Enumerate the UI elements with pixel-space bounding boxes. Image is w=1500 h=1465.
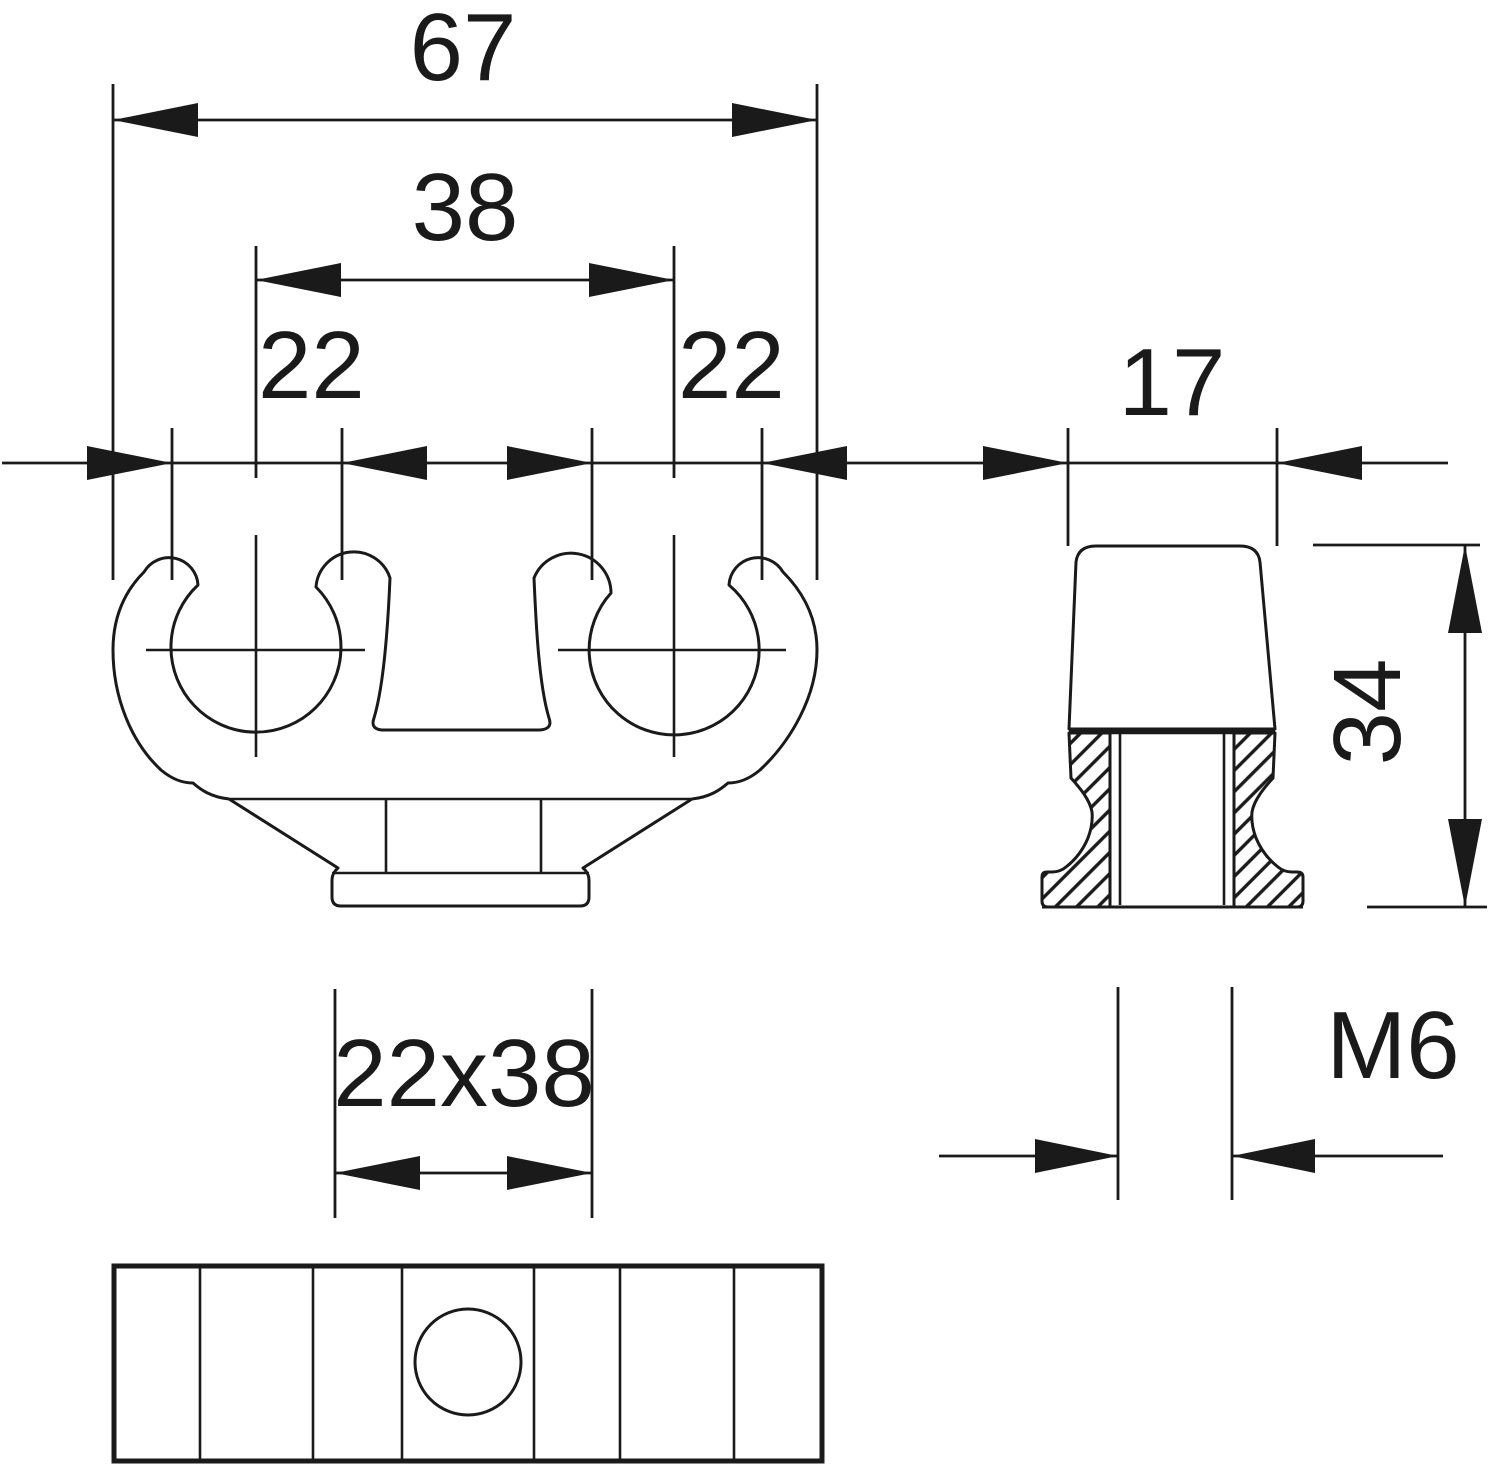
dimension-text-22-left: 22 [258,312,365,419]
arrowhead-top [1448,545,1482,633]
arrowhead-left [1035,1139,1118,1173]
dimension-text-17: 17 [1119,329,1226,436]
arrowhead-right [507,1156,592,1190]
dimension-text-m6: M6 [1326,992,1459,1099]
side-section-view [1042,546,1303,907]
dimension-thread: M6 [939,987,1460,1200]
dimension-text-38: 38 [412,154,519,261]
dimension-text-34: 34 [1314,659,1421,766]
bottom-plan-view [114,1266,822,1461]
arrowhead [87,446,172,480]
arrowhead-left [335,1156,420,1190]
arrowhead-left [256,263,341,297]
arrowhead [1277,446,1362,480]
technical-drawing-canvas: 67 38 22 22 17 34 [0,0,1500,1465]
side-section-right-wall [1234,733,1303,907]
arrowhead-right [732,103,817,137]
dimension-overall-width: 67 [113,0,817,580]
drawing-sheet: 67 38 22 22 17 34 [0,0,1500,1465]
side-section-left-wall [1042,733,1110,907]
arrowhead [762,446,847,480]
arrowhead [342,446,427,480]
side-cap-outline [1069,546,1275,729]
dimension-row-clip-diameters: 22 22 17 [2,312,1448,580]
arrowhead-left [113,103,198,137]
arrowhead [983,446,1068,480]
front-view [113,535,817,906]
dimension-text-67: 67 [410,0,517,101]
dimension-text-22x38: 22x38 [333,1020,595,1127]
dimension-mounting-base: 22x38 [333,989,595,1218]
arrowhead-bottom [1448,819,1482,907]
front-view-outline [113,552,817,906]
arrowhead-right [1232,1139,1315,1173]
plan-view-body [114,1266,822,1461]
dimension-text-22-right: 22 [678,312,785,419]
dimension-overall-height: 34 [1313,545,1487,907]
arrowhead-right [589,263,674,297]
arrowhead [507,446,592,480]
